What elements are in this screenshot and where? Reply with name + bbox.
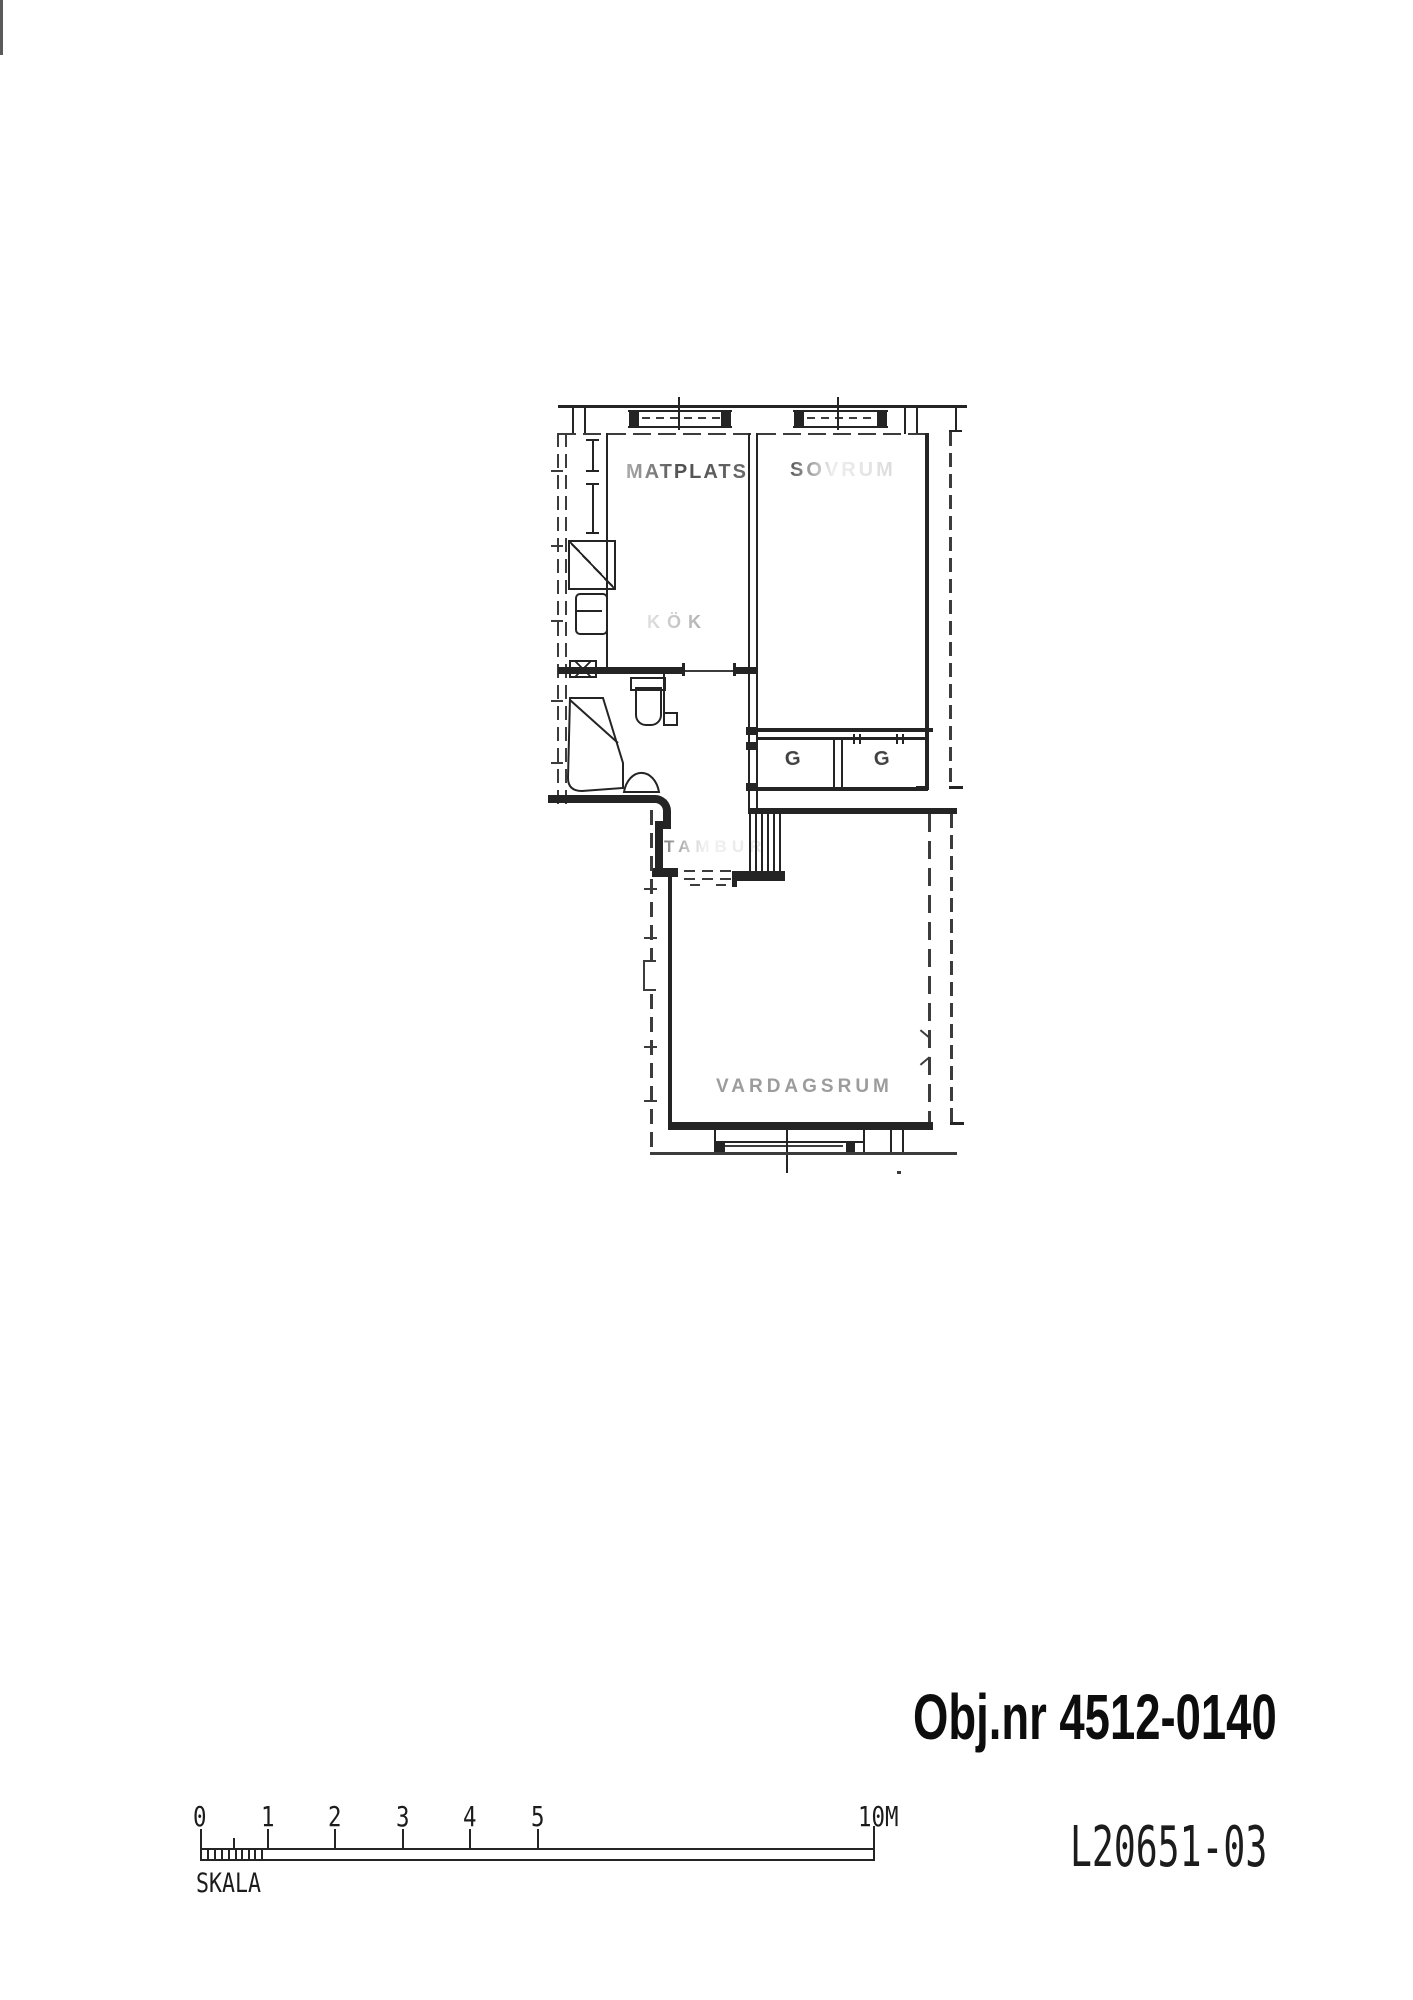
window-mullion — [837, 397, 839, 430]
entry-door-dashed — [684, 870, 736, 872]
window-symbol — [793, 426, 888, 428]
door-jamb — [682, 663, 685, 676]
dimension-line — [592, 440, 594, 472]
wall-tick — [644, 888, 657, 890]
door-jamb — [746, 783, 758, 791]
exterior-wall-thick — [548, 795, 642, 803]
scale-tick — [537, 1829, 539, 1848]
window-end-block — [629, 411, 639, 426]
closet-door-tick — [859, 734, 861, 744]
wall-end-hook — [950, 1122, 964, 1125]
kitchen-wall — [734, 667, 758, 674]
ground-line — [650, 1152, 957, 1155]
window-end-block — [716, 1143, 725, 1152]
closet-door-tick — [853, 734, 855, 744]
window-mullion — [678, 397, 680, 430]
stove-divider — [577, 610, 602, 612]
scale-subtick — [235, 1850, 237, 1859]
stair-landing-edge — [732, 871, 737, 887]
exterior-wall-thick — [655, 821, 663, 869]
dimension-cap — [586, 532, 599, 534]
closet-divider — [841, 740, 843, 787]
scale-subtick — [207, 1850, 209, 1859]
wall-tick — [551, 545, 563, 547]
room-label-vardagsrum: VARDAGSRUM — [716, 1076, 893, 1098]
dimension-cap — [586, 483, 599, 485]
exterior-wall-right — [949, 432, 952, 789]
scale-bar-line — [200, 1859, 875, 1861]
window-symbol — [714, 1141, 865, 1143]
livingroom-wall-right — [928, 814, 931, 1124]
interior-wall — [748, 433, 750, 810]
livingroom-wall-left — [668, 877, 672, 1126]
dimension-cap — [586, 439, 599, 441]
door-jamb — [746, 742, 758, 750]
wall-stub — [955, 405, 957, 432]
closet-wall — [758, 787, 928, 791]
livingroom-wall-top — [748, 808, 957, 814]
scale-subtick — [261, 1850, 263, 1859]
wall-tick — [644, 1100, 657, 1102]
door-opening-line — [684, 670, 734, 672]
scale-tick — [267, 1829, 269, 1848]
scale-subtick — [241, 1850, 243, 1859]
scale-tick — [200, 1829, 202, 1848]
wall-end-hook — [949, 786, 963, 789]
scanned-floor-plan-page: MATPLATS SOVRUM KÖK TAMBUR VARDAGSRUM G … — [0, 0, 1413, 2000]
scale-tick — [469, 1829, 471, 1848]
scale-subtick — [228, 1850, 230, 1859]
window-centerline — [642, 417, 720, 419]
wall-stub — [904, 408, 906, 434]
livingroom-wall-bottom — [668, 1122, 933, 1130]
object-number: Obj.nr 4512-0140 — [913, 1680, 1277, 1754]
window-symbol — [793, 410, 888, 412]
entry-door-dash — [690, 884, 700, 886]
balcony-door-jamb — [890, 1130, 892, 1154]
window-end-block — [794, 411, 804, 426]
closet-door-tick — [902, 734, 904, 744]
wall-tick — [644, 937, 657, 939]
interior-wall — [756, 433, 758, 810]
dimension-line — [592, 484, 594, 534]
closet-label-g: G — [873, 747, 891, 772]
scale-subtick — [254, 1850, 256, 1859]
scale-subtick — [221, 1850, 223, 1859]
wall-pilaster — [643, 960, 656, 991]
balcony-door-jamb — [902, 1130, 904, 1154]
door-jamb — [746, 727, 758, 735]
scale-bar-cap — [873, 1848, 875, 1861]
wall-tick — [644, 1046, 657, 1048]
scan-speck — [897, 1171, 901, 1174]
stove — [575, 593, 608, 635]
scale-end-label: 10M — [858, 1800, 898, 1833]
window-centerline — [807, 417, 877, 419]
scale-tick — [402, 1829, 404, 1848]
window-mullion — [786, 1128, 788, 1173]
door-jamb — [733, 663, 736, 676]
interior-wall — [558, 433, 933, 435]
window-end-block — [877, 411, 887, 426]
scale-subtick — [214, 1850, 216, 1859]
closet-label-g: G — [784, 747, 802, 772]
scale-bar-cap — [200, 1848, 202, 1861]
scan-edge-artifact — [0, 0, 3, 55]
drawing-number: L20651-03 — [1070, 1815, 1267, 1880]
entry-door-dashed — [684, 878, 736, 880]
room-label-tambur: TAMBUR — [664, 837, 766, 857]
window-symbol — [628, 426, 732, 428]
window-end-block — [846, 1143, 855, 1152]
wall-tick — [551, 620, 563, 622]
kitchen-bench-symbol — [568, 540, 616, 590]
scale-label: SKALA — [196, 1868, 261, 1899]
scale-half-tick — [233, 1838, 235, 1850]
room-label-matplats: MATPLATS — [626, 461, 748, 484]
scale-tick — [334, 1829, 336, 1848]
closet-divider — [833, 740, 835, 787]
bathtub — [568, 698, 623, 791]
entry-door-dash — [716, 884, 726, 886]
bedroom-wall — [758, 728, 933, 732]
scale-subtick — [248, 1850, 250, 1859]
wall-stub — [572, 408, 574, 435]
exterior-wall-right-lower — [950, 814, 953, 1124]
wall-stub — [916, 408, 918, 434]
closet-door-tick — [896, 734, 898, 744]
wall-tick — [551, 470, 563, 472]
window-symbol — [628, 410, 732, 412]
washbasin — [624, 773, 659, 792]
wall-stub — [584, 408, 586, 435]
scale-bar-line — [200, 1848, 875, 1850]
door-jamb — [652, 868, 678, 877]
stair-landing-edge — [736, 871, 785, 881]
dimension-cap — [586, 470, 599, 472]
room-label-sovrum: SOVRUM — [790, 459, 896, 482]
window-end-block — [721, 411, 731, 426]
room-label-kok: KÖK — [647, 612, 708, 633]
window-sill-line — [723, 1145, 843, 1147]
scale-tick — [873, 1826, 875, 1848]
